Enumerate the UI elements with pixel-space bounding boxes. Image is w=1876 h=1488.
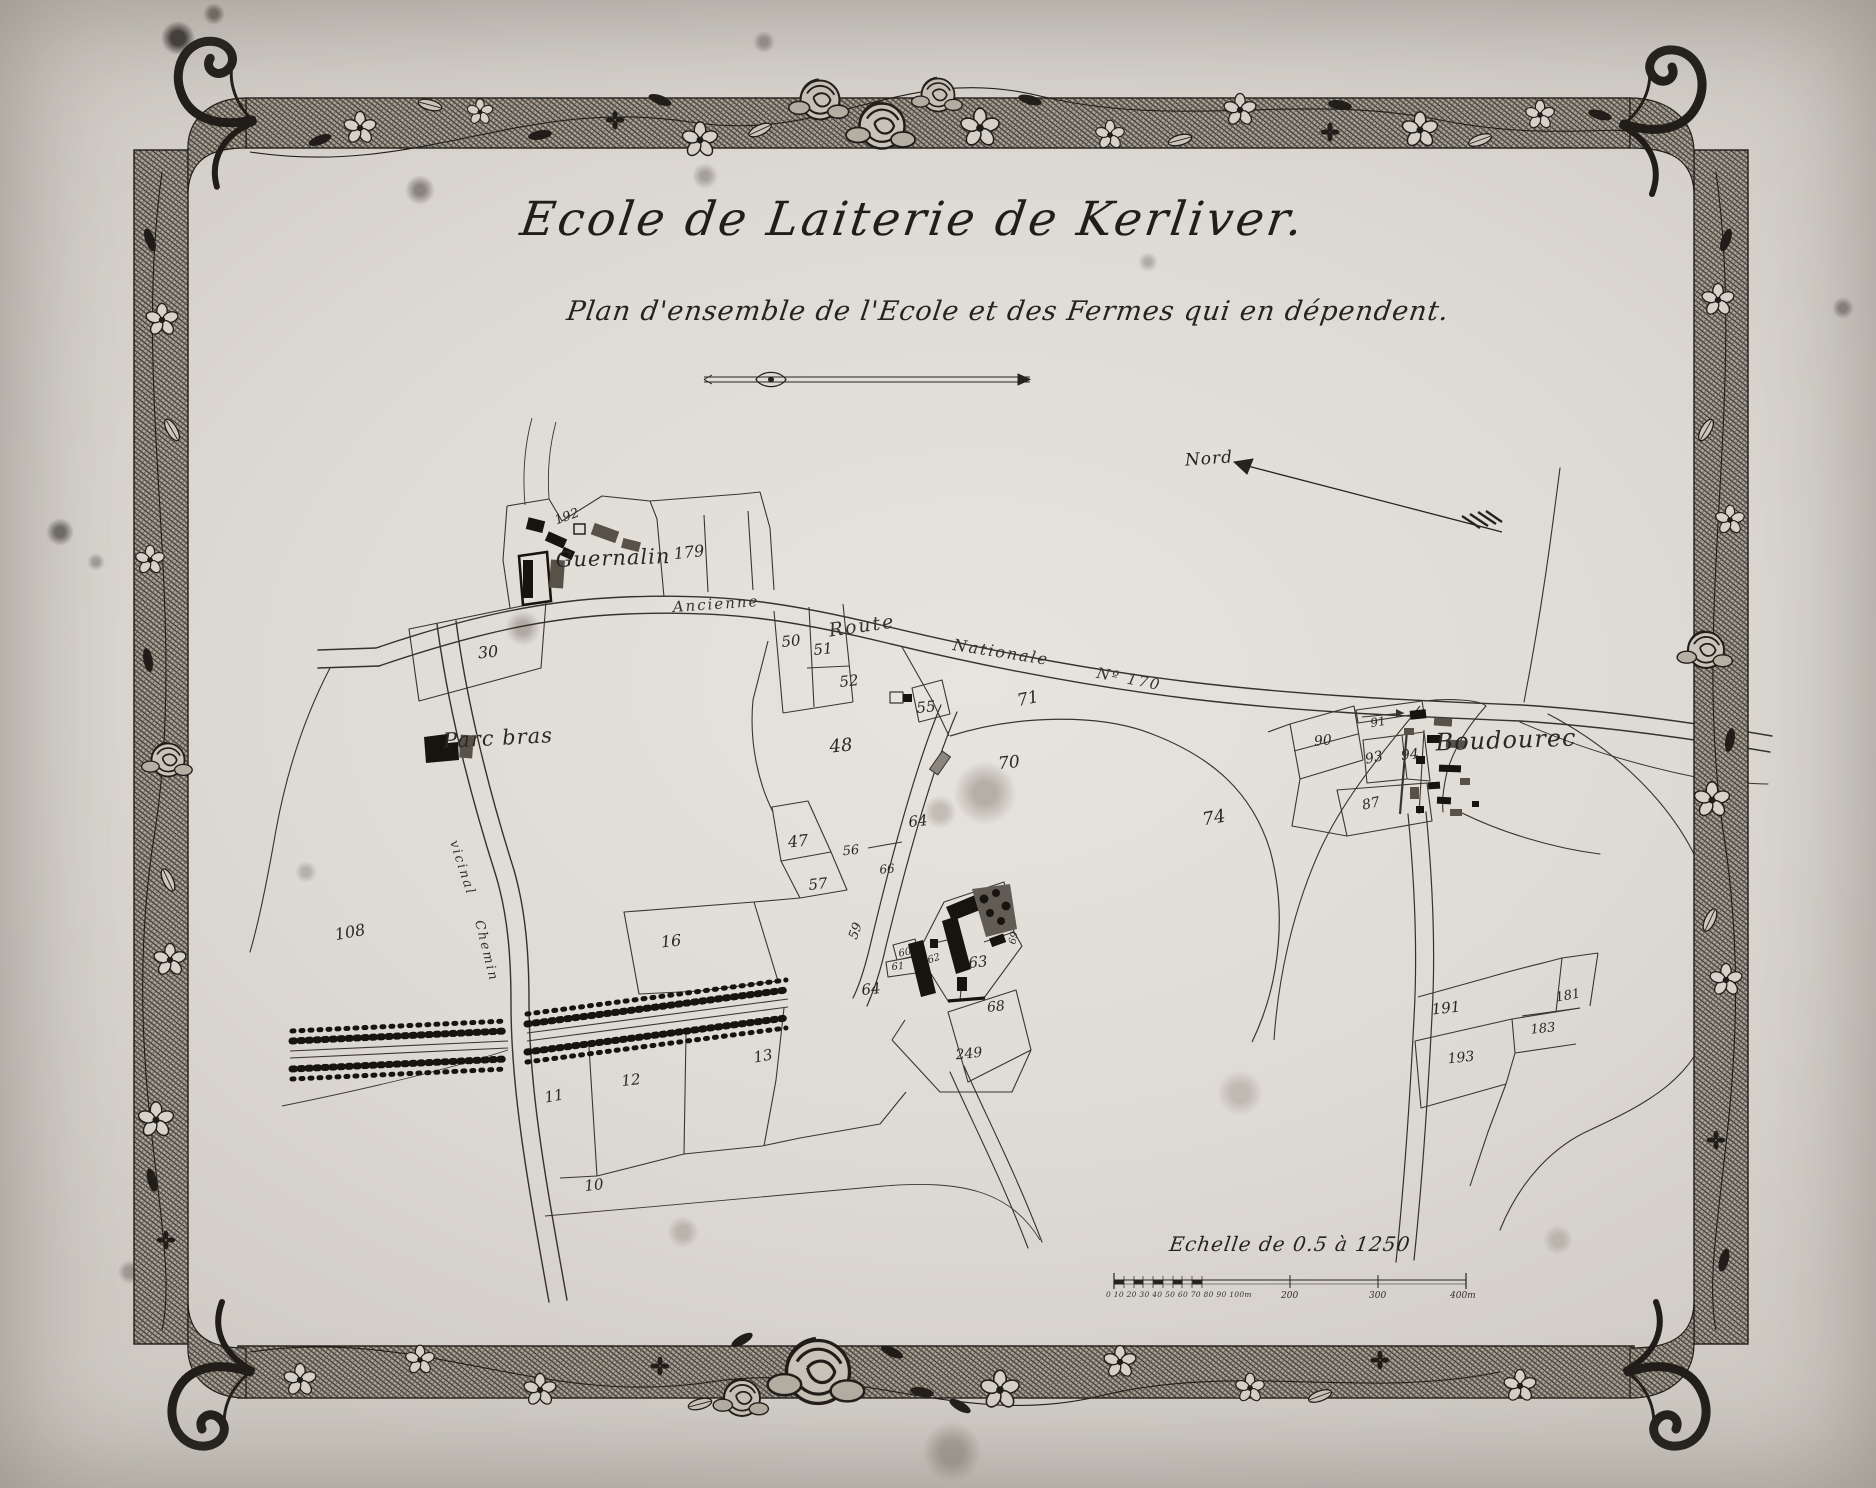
parcel-number: 56 <box>842 843 860 860</box>
parcel-number: 68 <box>986 998 1005 1016</box>
parcel-number: 52 <box>839 671 860 691</box>
map-subtitle: Plan d'ensemble de l'Ecole et des Fermes… <box>565 296 1452 327</box>
parcel-number: 94 <box>1400 746 1419 764</box>
place-label: Guernalin <box>555 544 671 572</box>
parcel-number: 91 <box>1369 714 1386 730</box>
parcel-number: 10 <box>584 1175 605 1195</box>
north-label: Nord <box>1184 447 1233 470</box>
parcel-number: 191 <box>1431 998 1461 1019</box>
parcel-number: 249 <box>955 1045 983 1064</box>
parcel-number: 64 <box>908 811 929 831</box>
scale-tick-labels: 0 10 20 30 40 50 60 70 80 90 100m <box>1106 1290 1252 1299</box>
parcel-number: 50 <box>781 631 802 651</box>
map-sheet: Ecole de Laiterie de Kerliver. Plan d'en… <box>0 0 1876 1488</box>
parcel-number: 30 <box>477 641 499 662</box>
parcel-number: 64 <box>861 979 882 999</box>
scale-caption: Echelle de 0.5 à 1250 <box>1168 1232 1412 1256</box>
parcel-number: 16 <box>660 930 682 951</box>
map-title: Ecole de Laiterie de Kerliver. <box>517 192 1309 247</box>
place-label: Boudourec <box>1435 724 1577 757</box>
parcel-number: 11 <box>543 1085 565 1106</box>
parcel-number: 193 <box>1447 1049 1475 1068</box>
parcel-number: 63 <box>968 952 989 972</box>
parcel-number: 57 <box>808 874 829 894</box>
parcel-number: 51 <box>813 639 834 659</box>
scale-tick-200: 200 <box>1281 1291 1298 1301</box>
parcel-number: 183 <box>1530 1020 1556 1038</box>
parcel-number: 13 <box>752 1045 774 1066</box>
parcel-number: 66 <box>879 861 896 877</box>
parcel-number: 70 <box>997 752 1021 774</box>
parcel-number: 61 <box>891 961 905 973</box>
parcel-number: 74 <box>1201 806 1227 831</box>
scale-tick-300: 300 <box>1369 1291 1386 1301</box>
parcel-number: 47 <box>787 830 809 851</box>
parcel-number: 179 <box>673 541 705 563</box>
parcel-number: 48 <box>829 734 854 757</box>
parcel-number: 90 <box>1313 732 1332 750</box>
parcel-number: 12 <box>621 1070 642 1090</box>
scale-tick-400: 400m <box>1450 1291 1476 1301</box>
parcel-number: 55 <box>916 697 937 717</box>
